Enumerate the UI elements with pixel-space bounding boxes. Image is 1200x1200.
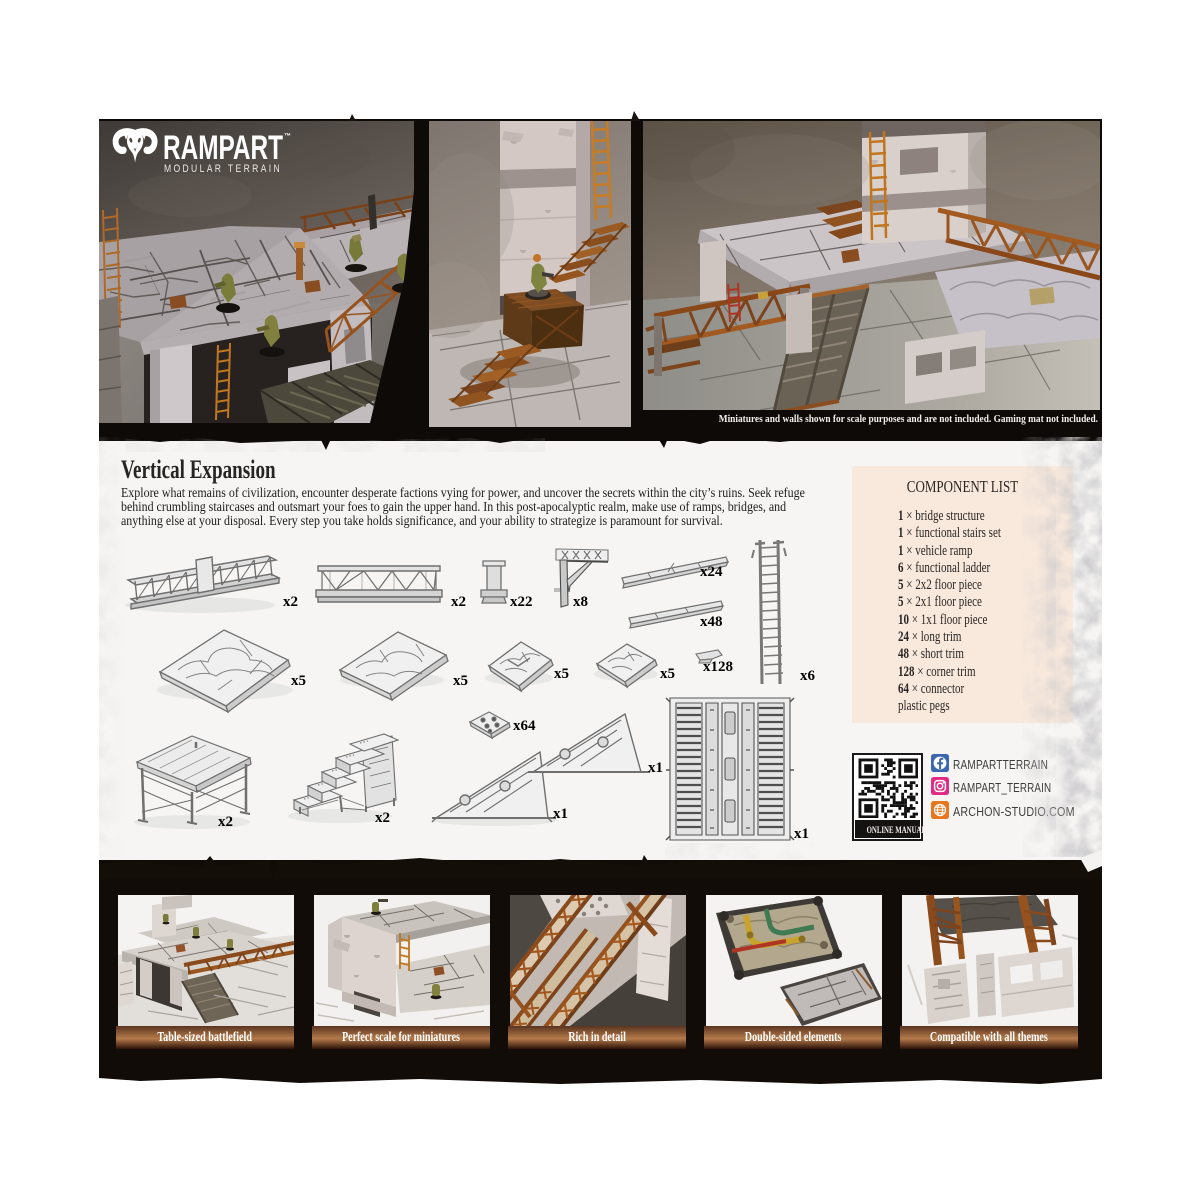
svg-text:x2: x2	[451, 594, 466, 610]
svg-text:x64: x64	[513, 718, 536, 734]
svg-text:MODULAR TERRAIN: MODULAR TERRAIN	[164, 163, 282, 175]
svg-text:x5: x5	[554, 666, 569, 682]
svg-text:x48: x48	[700, 614, 723, 630]
svg-text:™: ™	[284, 133, 291, 140]
svg-text:x5: x5	[291, 673, 306, 689]
svg-text:x1: x1	[648, 760, 663, 776]
svg-text:x6: x6	[800, 668, 816, 684]
svg-text:x24: x24	[700, 564, 723, 580]
svg-text:x22: x22	[510, 594, 533, 610]
svg-text:x8: x8	[573, 594, 588, 610]
svg-text:RAMPART: RAMPART	[163, 129, 283, 167]
svg-text:x128: x128	[703, 659, 733, 675]
svg-text:x1: x1	[553, 806, 568, 822]
svg-text:x5: x5	[453, 673, 468, 689]
svg-text:x2: x2	[375, 810, 390, 826]
svg-text:x2: x2	[283, 594, 298, 610]
svg-text:x5: x5	[660, 666, 675, 682]
svg-text:x1: x1	[794, 826, 809, 842]
svg-text:x2: x2	[218, 814, 233, 830]
